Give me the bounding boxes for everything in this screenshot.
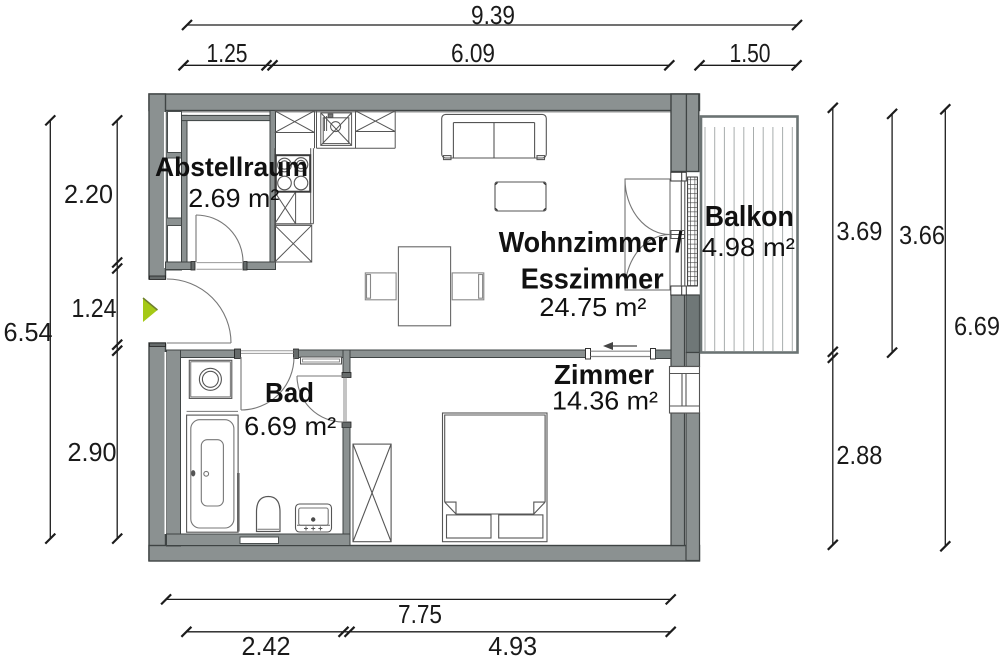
svg-text:Abstellraum: Abstellraum (155, 152, 308, 182)
svg-text:9.39: 9.39 (471, 0, 515, 30)
svg-text:Esszimmer: Esszimmer (521, 264, 664, 296)
svg-text:6.09: 6.09 (451, 38, 495, 68)
svg-text:4.98 m²: 4.98 m² (702, 232, 795, 262)
svg-text:Bad: Bad (265, 377, 314, 408)
svg-text:6.69: 6.69 (954, 311, 1000, 341)
svg-text:2.88: 2.88 (836, 440, 882, 470)
svg-text:1.25: 1.25 (207, 38, 248, 68)
svg-text:3.66: 3.66 (899, 220, 945, 250)
svg-text:7.75: 7.75 (398, 599, 442, 629)
svg-text:Wohnzimmer /: Wohnzimmer / (499, 227, 683, 259)
svg-text:6.54: 6.54 (4, 317, 53, 347)
svg-text:1.50: 1.50 (730, 38, 771, 68)
svg-text:Balkon: Balkon (705, 201, 794, 233)
svg-text:1.24: 1.24 (72, 293, 117, 323)
svg-text:2.20: 2.20 (64, 179, 113, 209)
svg-text:14.36 m²: 14.36 m² (552, 386, 658, 416)
svg-text:3.69: 3.69 (836, 216, 882, 246)
svg-text:24.75 m²: 24.75 m² (539, 292, 646, 322)
svg-text:2.69 m²: 2.69 m² (188, 183, 279, 213)
svg-text:6.69 m²: 6.69 m² (244, 411, 336, 441)
svg-text:2.42: 2.42 (242, 631, 291, 661)
svg-text:4.93: 4.93 (488, 631, 537, 661)
svg-text:2.90: 2.90 (68, 437, 117, 467)
